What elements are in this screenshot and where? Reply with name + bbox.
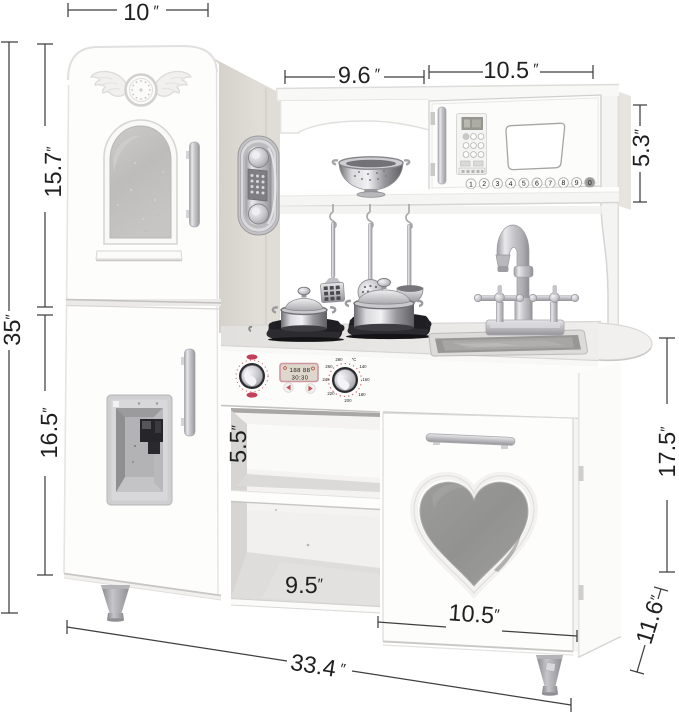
svg-text:200: 200 xyxy=(344,398,352,403)
svg-text:17.5″: 17.5″ xyxy=(654,426,679,478)
svg-text:280: 280 xyxy=(335,357,343,362)
svg-text:9: 9 xyxy=(575,180,579,187)
svg-text:140: 140 xyxy=(359,364,367,369)
svg-text:10.5″: 10.5″ xyxy=(448,599,501,629)
svg-text:2: 2 xyxy=(482,181,486,188)
svg-text:0: 0 xyxy=(588,180,592,187)
svg-text:180: 180 xyxy=(358,392,366,397)
svg-text:16.5″: 16.5″ xyxy=(36,407,62,459)
svg-text:220: 220 xyxy=(327,391,335,396)
svg-text:1: 1 xyxy=(469,181,473,188)
svg-text:260: 260 xyxy=(325,364,333,369)
svg-text:30:30: 30:30 xyxy=(291,375,308,382)
svg-text:160: 160 xyxy=(362,377,370,382)
svg-text:15.7″: 15.7″ xyxy=(40,146,66,198)
svg-text:4: 4 xyxy=(509,181,513,188)
svg-text:8: 8 xyxy=(561,180,565,187)
svg-text:3: 3 xyxy=(495,181,499,188)
svg-text:188 88: 188 88 xyxy=(290,367,311,374)
svg-text:240: 240 xyxy=(322,377,330,382)
svg-text:5: 5 xyxy=(522,181,526,188)
svg-text:6: 6 xyxy=(535,181,539,188)
svg-text:°C: °C xyxy=(352,357,357,362)
svg-text:7: 7 xyxy=(548,180,552,187)
